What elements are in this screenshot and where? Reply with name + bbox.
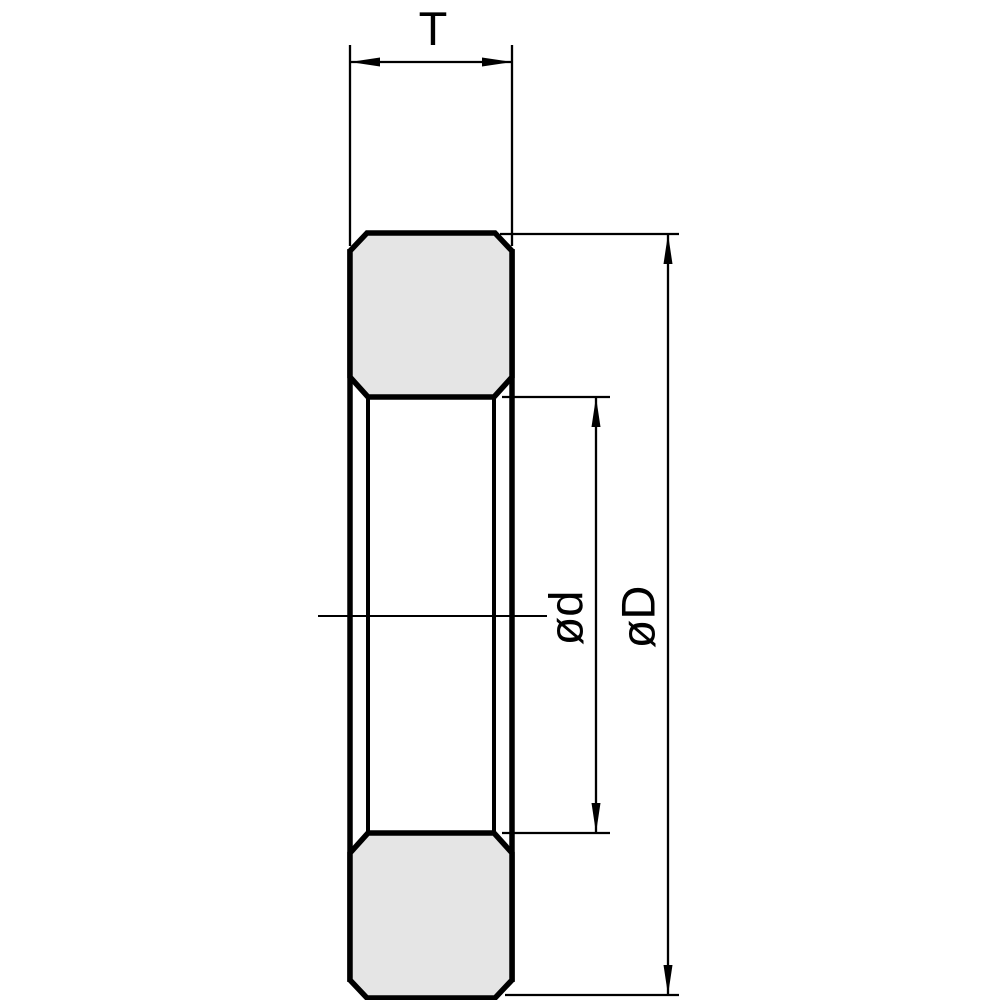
label-outer-diameter: øD — [611, 586, 664, 649]
top-cross-section — [350, 233, 512, 397]
arrowhead-down-icon — [592, 803, 601, 833]
arrowhead-left-icon — [350, 58, 380, 67]
arrowhead-right-icon — [482, 58, 512, 67]
bottom-cross-section — [350, 833, 512, 998]
technical-drawing: T ød øD — [0, 0, 1000, 1000]
arrowhead-up-icon — [592, 397, 601, 427]
dimension-thickness: T — [350, 2, 512, 246]
label-thickness: T — [419, 2, 448, 55]
arrowhead-down-icon — [664, 965, 673, 995]
label-inner-diameter: ød — [539, 591, 592, 646]
drawing-canvas: T ød øD — [0, 0, 1000, 1000]
arrowhead-up-icon — [664, 234, 673, 264]
